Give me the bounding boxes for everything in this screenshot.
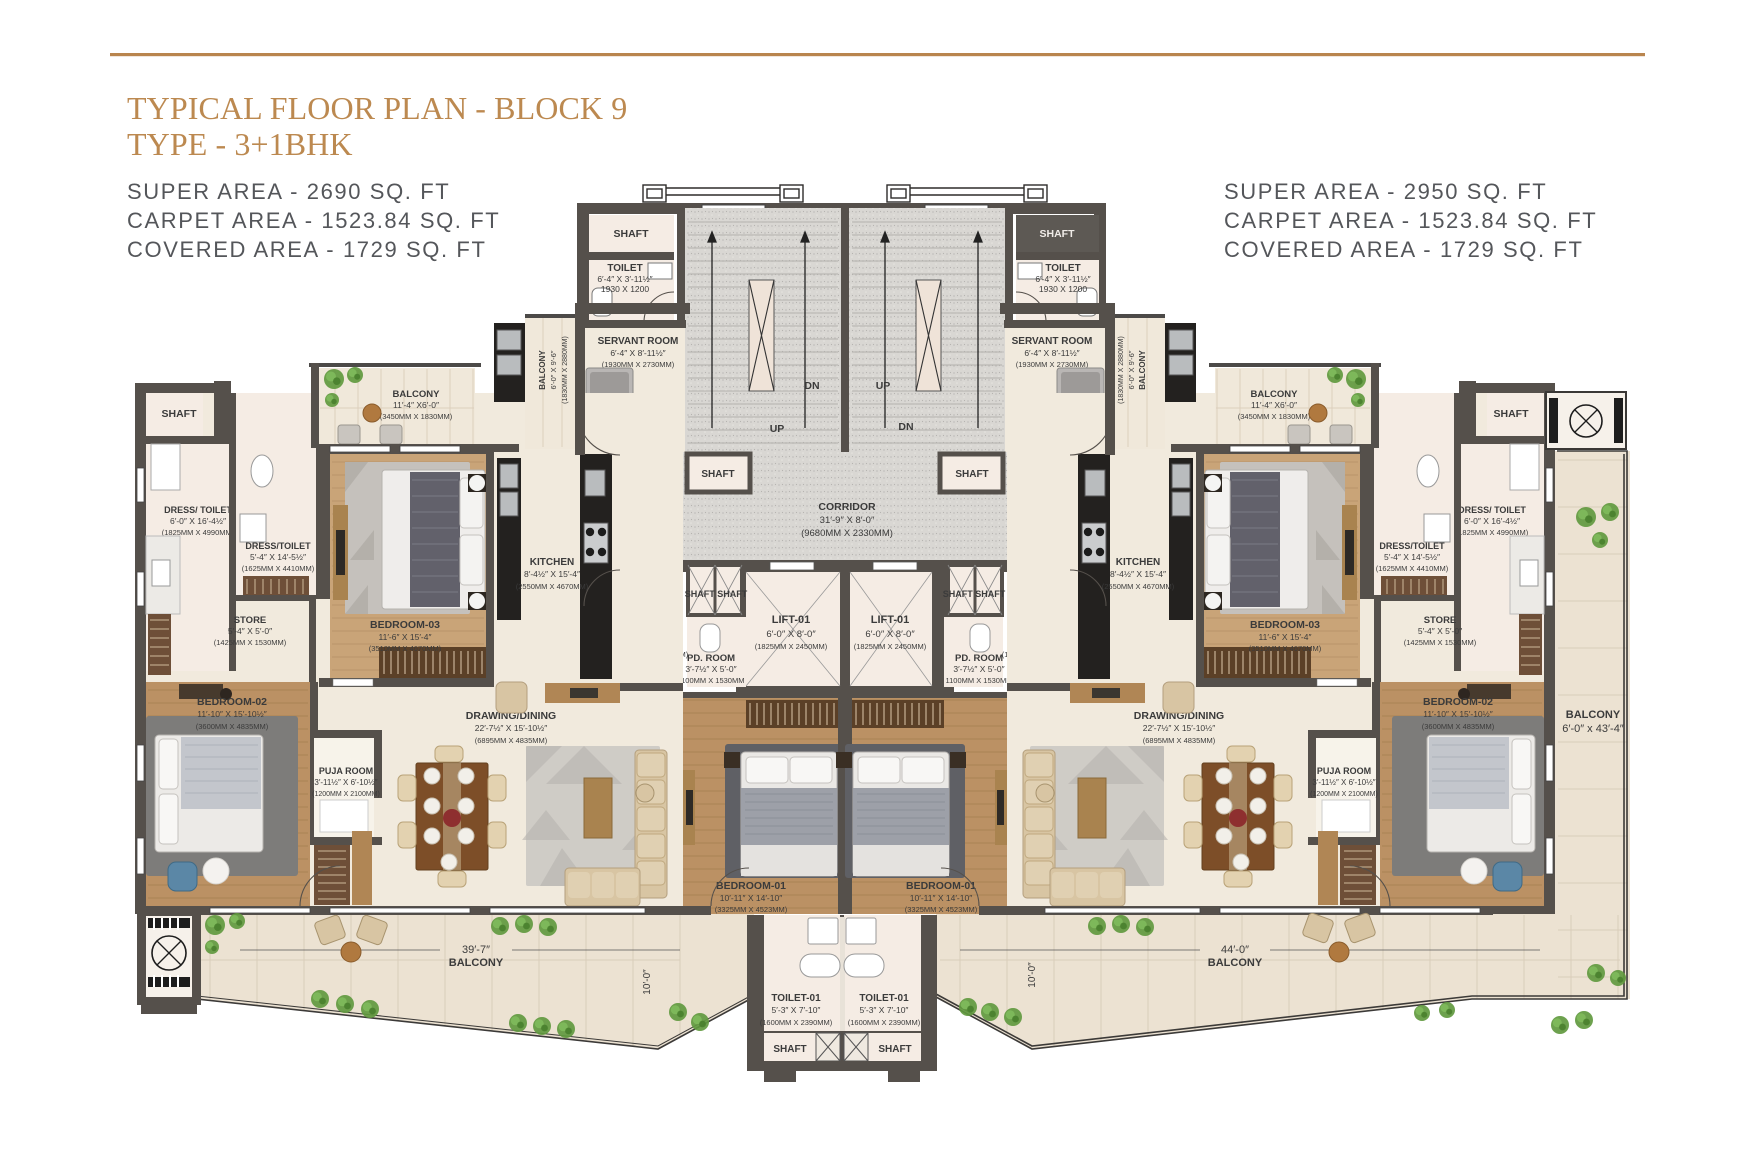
svg-text:(1425MM X 1530MM): (1425MM X 1530MM) [1404,638,1477,647]
svg-text:(3450MM X 1830MM): (3450MM X 1830MM) [1238,412,1311,421]
svg-text:22′-7½″ X 15′-10½″: 22′-7½″ X 15′-10½″ [475,723,548,733]
svg-text:8′-4½″ X 15′-4″: 8′-4½″ X 15′-4″ [1110,569,1166,579]
svg-text:3′-7½″ X 5′-0″: 3′-7½″ X 5′-0″ [685,664,736,674]
svg-text:6′-0″ X 8′-0″: 6′-0″ X 8′-0″ [865,629,915,640]
svg-text:(1825MM X 2450MM): (1825MM X 2450MM) [854,642,927,651]
svg-text:10′-0″: 10′-0″ [1027,962,1038,988]
svg-text:(2550MM X 4670MM): (2550MM X 4670MM) [1102,582,1175,591]
svg-text:3′-11½″ X 6′-10½″: 3′-11½″ X 6′-10½″ [314,778,377,787]
svg-text:44′-0″: 44′-0″ [1221,944,1249,956]
svg-text:(3510MM X 4670MM): (3510MM X 4670MM) [369,644,442,653]
svg-text:LIFT-01: LIFT-01 [772,614,811,626]
svg-text:(1200MM X 2100MM): (1200MM X 2100MM) [1310,791,1378,798]
svg-text:STORE: STORE [234,615,267,626]
svg-text:6′-4″ X 3′-11½″: 6′-4″ X 3′-11½″ [597,274,652,284]
svg-text:(3600MM X 4835MM): (3600MM X 4835MM) [196,722,269,731]
svg-text:(9680MM X 2330MM): (9680MM X 2330MM) [801,528,893,539]
svg-text:SUPER AREA - 2690 SQ. FT: SUPER AREA - 2690 SQ. FT [127,179,450,204]
svg-text:(1825MM X 2450MM): (1825MM X 2450MM) [755,642,828,651]
svg-text:(1600MM X 2390MM): (1600MM X 2390MM) [760,1018,833,1027]
svg-text:1930 X 1200: 1930 X 1200 [1039,284,1087,294]
svg-text:KITCHEN: KITCHEN [1116,557,1160,568]
svg-text:DN: DN [804,380,819,392]
svg-text:SHAFT SHAFT: SHAFT SHAFT [685,589,748,599]
svg-text:11′-6″ X 15′-4″: 11′-6″ X 15′-4″ [1259,632,1312,642]
svg-text:6′-0″ X 16′-4½″: 6′-0″ X 16′-4½″ [170,516,226,526]
svg-text:BEDROOM-03: BEDROOM-03 [370,619,440,631]
svg-text:BALCONY: BALCONY [393,389,441,400]
svg-text:22′-7½″ X 15′-10½″: 22′-7½″ X 15′-10½″ [1143,723,1216,733]
svg-text:10′-11″ X 14′-10″: 10′-11″ X 14′-10″ [910,893,972,903]
svg-text:(3600MM X 4835MM): (3600MM X 4835MM) [1422,722,1495,731]
svg-text:11′-10″ X 15′-10½″: 11′-10″ X 15′-10½″ [197,709,267,719]
svg-text:BALCONY: BALCONY [1208,957,1263,969]
svg-text:(1425MM X 1530MM): (1425MM X 1530MM) [214,638,287,647]
svg-text:5′-4″ X 14′-5½″: 5′-4″ X 14′-5½″ [250,552,306,562]
svg-text:COVERED AREA - 1729 SQ. FT: COVERED AREA - 1729 SQ. FT [127,237,486,262]
svg-text:LIFT-01: LIFT-01 [871,614,910,626]
svg-text:(3450MM X 1830MM): (3450MM X 1830MM) [380,412,453,421]
svg-text:BEDROOM-01: BEDROOM-01 [906,880,976,892]
svg-text:3′-11½″ X 6′-10½″: 3′-11½″ X 6′-10½″ [1312,778,1375,787]
svg-text:11′-4″ X6′-0″: 11′-4″ X6′-0″ [1251,400,1297,410]
svg-text:DRESS/ TOILET: DRESS/ TOILET [164,505,232,515]
svg-text:(6895MM X 4835MM): (6895MM X 4835MM) [1143,736,1216,745]
svg-text:SHAFT: SHAFT [701,469,734,480]
svg-text:SHAFT: SHAFT [162,408,198,420]
svg-text:5′-3″ X 7′-10″: 5′-3″ X 7′-10″ [860,1005,909,1015]
svg-text:PUJA ROOM: PUJA ROOM [319,766,373,776]
svg-text:SUPER AREA - 2950 SQ. FT: SUPER AREA - 2950 SQ. FT [1224,179,1547,204]
svg-text:(1625MM X 4410MM): (1625MM X 4410MM) [1376,564,1449,573]
svg-text:DN: DN [898,421,913,433]
svg-text:SHAFT: SHAFT [878,1044,911,1055]
svg-text:11′-4″ X6′-0″: 11′-4″ X6′-0″ [393,400,439,410]
svg-text:TOILET: TOILET [1045,263,1080,274]
svg-text:TOILET: TOILET [607,263,642,274]
svg-text:COVERED AREA - 1729 SQ. FT: COVERED AREA - 1729 SQ. FT [1224,237,1583,262]
svg-text:STORE: STORE [1424,615,1457,626]
svg-text:BALCONY: BALCONY [1251,389,1299,400]
svg-text:PD. ROOM: PD. ROOM [955,653,1003,664]
svg-text:(3325MM X 4523MM): (3325MM X 4523MM) [905,905,978,914]
svg-text:(1830MM X 2880MM): (1830MM X 2880MM) [562,336,569,404]
svg-text:(3510MM X 4670MM): (3510MM X 4670MM) [1249,644,1322,653]
svg-text:SHAFT: SHAFT [1494,408,1530,420]
svg-text:(6895MM X 4835MM): (6895MM X 4835MM) [475,736,548,745]
svg-text:(1200MM X 2100MM): (1200MM X 2100MM) [312,791,380,798]
svg-text:5′-4″ X 5′-0″: 5′-4″ X 5′-0″ [1418,626,1462,636]
svg-text:BALCONY: BALCONY [449,957,504,969]
svg-text:10′-11″ X 14′-10″: 10′-11″ X 14′-10″ [720,893,782,903]
svg-text:BEDROOM-02: BEDROOM-02 [1423,696,1493,708]
svg-text:TYPE - 3+1BHK: TYPE - 3+1BHK [127,126,353,162]
svg-text:(1625MM X 4410MM): (1625MM X 4410MM) [242,564,315,573]
svg-text:(2550MM X 4670MM): (2550MM X 4670MM) [516,582,589,591]
svg-text:(1600MM X 2390MM): (1600MM X 2390MM) [848,1018,921,1027]
svg-text:(3325MM X 4523MM): (3325MM X 4523MM) [715,905,788,914]
svg-text:6′-4″ X 3′-11½″: 6′-4″ X 3′-11½″ [1035,274,1090,284]
svg-text:3′-7½″ X 5′-0″: 3′-7½″ X 5′-0″ [953,664,1004,674]
svg-text:PUJA ROOM: PUJA ROOM [1317,766,1371,776]
svg-text:1100MM X 1530MM: 1100MM X 1530MM [678,676,745,685]
svg-text:10′-0″: 10′-0″ [642,969,653,995]
svg-text:SHAFT: SHAFT [1040,228,1076,240]
svg-text:31′-9″ X 8′-0″: 31′-9″ X 8′-0″ [820,515,875,526]
svg-text:DRESS/ TOILET: DRESS/ TOILET [1458,505,1526,515]
svg-text:6′-0″ X 9′-6″: 6′-0″ X 9′-6″ [1127,350,1136,389]
svg-text:6′-4″ X 8′-11½″: 6′-4″ X 8′-11½″ [610,348,665,358]
svg-text:39′-7″: 39′-7″ [462,944,490,956]
svg-text:5′-4″ X 14′-5½″: 5′-4″ X 14′-5½″ [1384,552,1440,562]
svg-text:BALCONY: BALCONY [1566,709,1621,721]
svg-text:BALCONY: BALCONY [1138,350,1147,390]
svg-text:SERVANT ROOM: SERVANT ROOM [1012,336,1093,347]
svg-text:BEDROOM-02: BEDROOM-02 [197,696,267,708]
svg-text:SHAFT: SHAFT [955,469,988,480]
svg-text:BALCONY: BALCONY [538,350,547,390]
svg-text:6′-0″ x 43′-4″: 6′-0″ x 43′-4″ [1562,723,1624,735]
svg-text:SHAFT SHAFT: SHAFT SHAFT [943,589,1006,599]
svg-text:TOILET-01: TOILET-01 [771,993,821,1004]
svg-text:BEDROOM-03: BEDROOM-03 [1250,619,1320,631]
svg-text:SHAFT: SHAFT [614,228,650,240]
svg-text:CORRIDOR: CORRIDOR [818,501,876,513]
svg-text:11′-6″ X 15′-4″: 11′-6″ X 15′-4″ [379,632,432,642]
svg-text:6′-4″ X 8′-11½″: 6′-4″ X 8′-11½″ [1024,348,1079,358]
svg-text:8′-4½″ X 15′-4″: 8′-4½″ X 15′-4″ [524,569,580,579]
svg-text:UP: UP [770,423,785,435]
svg-text:TOILET-01: TOILET-01 [859,993,909,1004]
svg-text:PD. ROOM: PD. ROOM [687,653,735,664]
svg-text:SERVANT ROOM: SERVANT ROOM [598,336,679,347]
svg-text:KITCHEN: KITCHEN [530,557,574,568]
svg-text:1100MM X 1530MM: 1100MM X 1530MM [946,676,1013,685]
svg-text:CARPET AREA - 1523.84 SQ. FT: CARPET AREA - 1523.84 SQ. FT [1224,208,1597,233]
svg-text:5′-4″ X 5′-0″: 5′-4″ X 5′-0″ [228,626,272,636]
svg-text:SHAFT: SHAFT [773,1044,806,1055]
svg-text:11′-10″ X 15′-10½″: 11′-10″ X 15′-10½″ [1423,709,1493,719]
svg-text:1930 X 1200: 1930 X 1200 [601,284,649,294]
svg-text:6′-0″ X 8′-0″: 6′-0″ X 8′-0″ [766,629,816,640]
svg-text:UP: UP [876,380,891,392]
svg-text:CARPET AREA - 1523.84 SQ. FT: CARPET AREA - 1523.84 SQ. FT [127,208,500,233]
svg-text:6′-0″ X 9′-6″: 6′-0″ X 9′-6″ [549,350,558,389]
svg-text:BEDROOM-01: BEDROOM-01 [716,880,786,892]
svg-text:6′-0″ X 16′-4½″: 6′-0″ X 16′-4½″ [1464,516,1520,526]
svg-text:TYPICAL FLOOR PLAN - BLOCK 9: TYPICAL FLOOR PLAN - BLOCK 9 [127,90,627,126]
svg-text:5′-3″ X 7′-10″: 5′-3″ X 7′-10″ [772,1005,821,1015]
svg-text:(1830MM X 2880MM): (1830MM X 2880MM) [1118,336,1125,404]
